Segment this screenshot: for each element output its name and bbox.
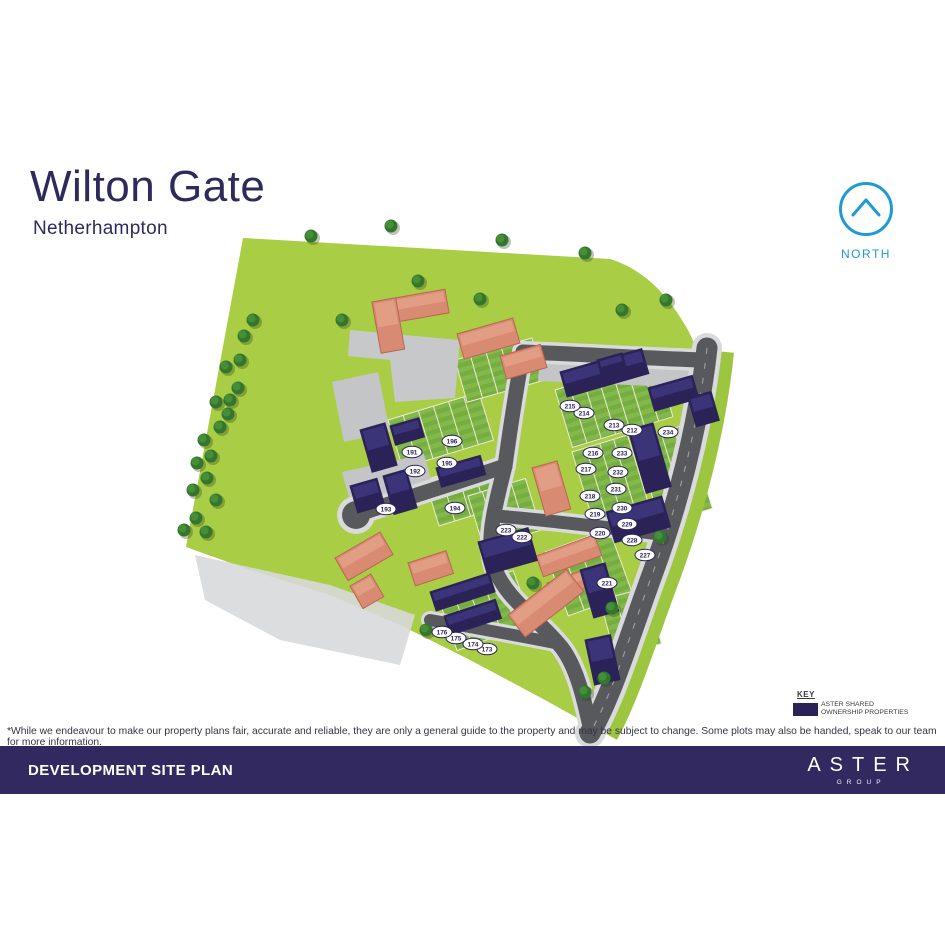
plot-number: 193 [381,506,392,513]
plot-marker: 228 [622,534,642,546]
key-label: ASTER SHARED OWNERSHIP PROPERTIES [821,701,908,717]
plot-number: 231 [611,486,622,493]
aster-group-logo: ASTER GROUP [798,754,919,786]
plot-marker: 213 [604,419,624,431]
plot-number: 192 [410,468,421,475]
plot-number: 174 [468,641,479,648]
north-arrow-icon [838,181,894,237]
plot-number: 215 [565,403,576,410]
plot-marker: 223 [496,524,516,536]
plot-marker: 217 [576,463,596,475]
plot-number: 230 [617,505,628,512]
plot-number: 195 [442,460,453,467]
plot-number: 223 [501,527,512,534]
plot-number: 234 [663,429,674,436]
plot-marker: 212 [622,424,642,436]
tree [385,220,401,236]
plot-number: 220 [595,530,606,537]
plot-marker: 192 [405,465,425,477]
plot-number: 232 [613,469,624,476]
plot-number: 228 [627,537,638,544]
plot-marker: 215 [560,400,580,412]
plot-marker: 234 [658,426,678,438]
plot-number: 222 [517,534,528,541]
plot-number: 176 [437,629,448,636]
plot-number: 194 [450,505,461,512]
plot-marker: 229 [617,518,637,530]
plot-number: 221 [602,580,613,587]
north-indicator: NORTH [835,181,897,261]
plot-marker: 176 [432,626,452,638]
plot-number: 173 [482,646,493,653]
map-key: KEY ASTER SHARED OWNERSHIP PROPERTIES [793,690,933,717]
page-title: Wilton Gate [30,162,265,212]
plot-marker: 218 [580,490,600,502]
page-subtitle: Netherhampton [33,218,168,240]
plot-number: 227 [640,552,651,559]
north-label: NORTH [835,247,897,261]
plot-marker: 220 [590,527,610,539]
plot-marker: 232 [608,466,628,478]
site-plan-map: 1731741751761911921931941951962122132142… [0,0,945,945]
plot-marker: 193 [376,503,396,515]
plot-marker: 195 [437,457,457,469]
plot-marker: 227 [635,549,655,561]
plot-marker: 194 [445,502,465,514]
footer-title: DEVELOPMENT SITE PLAN [28,762,233,779]
plot-marker: 216 [583,447,603,459]
disclaimer-text: *While we endeavour to make our property… [7,726,941,748]
plot-number: 196 [447,438,458,445]
plot-number: 219 [590,511,601,518]
plot-number: 191 [407,449,418,456]
plot-marker: 231 [606,483,626,495]
plot-number: 233 [617,450,628,457]
plot-marker: 196 [442,435,462,447]
footer-bar: DEVELOPMENT SITE PLAN ASTER GROUP [0,746,945,794]
plot-number: 213 [609,422,620,429]
plot-marker: 230 [612,502,632,514]
plot-number: 218 [585,493,596,500]
plot-number: 212 [627,427,638,434]
plot-number: 216 [588,450,599,457]
plot-marker: 233 [612,447,632,459]
plot-marker: 191 [402,446,422,458]
plot-marker: 219 [585,508,605,520]
plot-number: 229 [622,521,633,528]
plot-number: 175 [451,635,462,642]
key-heading: KEY [797,690,933,699]
plot-marker: 221 [597,577,617,589]
plot-number: 214 [579,410,590,417]
tree [496,234,512,250]
plot-number: 217 [581,466,592,473]
key-swatch-aster [793,703,818,716]
